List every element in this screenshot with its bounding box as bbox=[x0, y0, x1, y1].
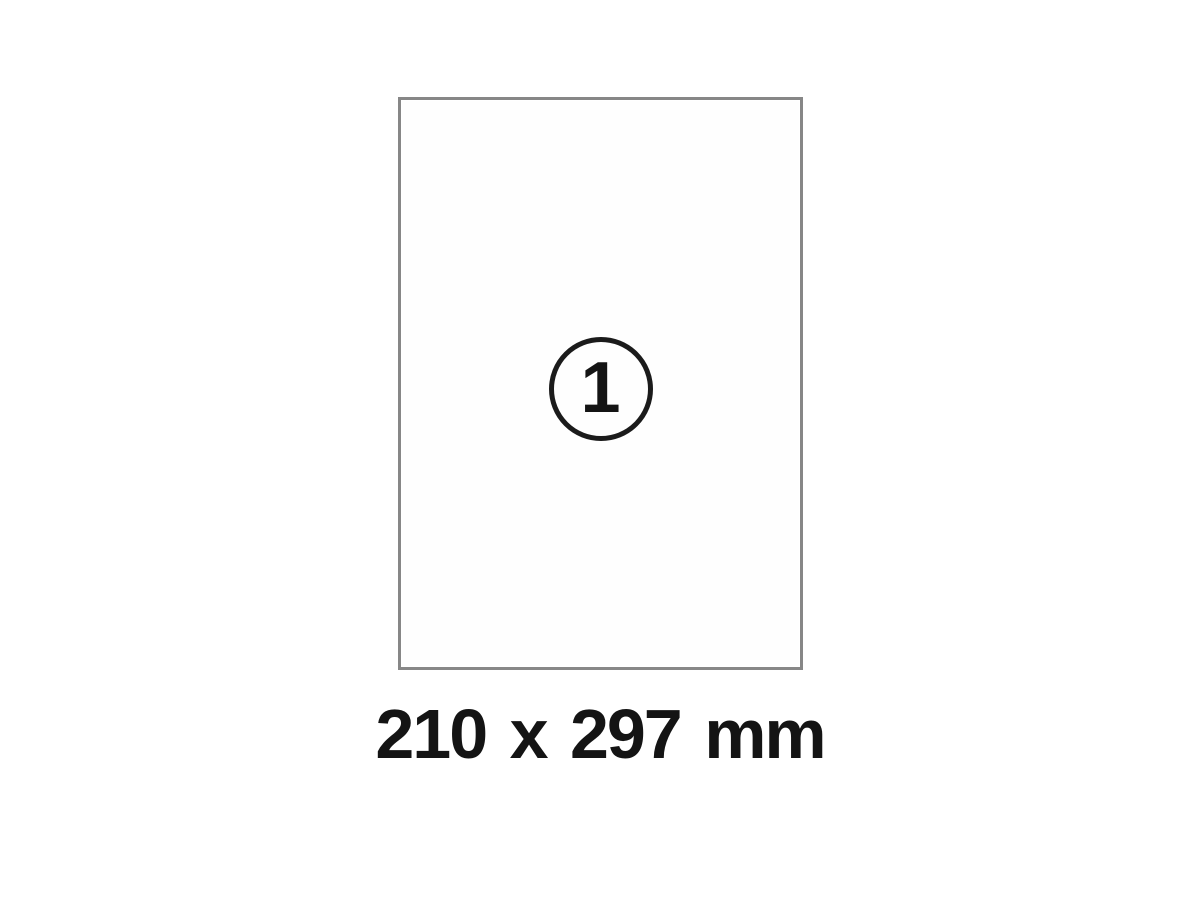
label-sheet-diagram: 1 210 x 297 mm bbox=[0, 0, 1200, 900]
label-count-number: 1 bbox=[580, 352, 620, 424]
label-count-badge: 1 bbox=[549, 337, 653, 441]
sheet-outline: 1 bbox=[398, 97, 803, 670]
sheet-dimensions-label: 210 x 297 mm bbox=[0, 699, 1200, 769]
